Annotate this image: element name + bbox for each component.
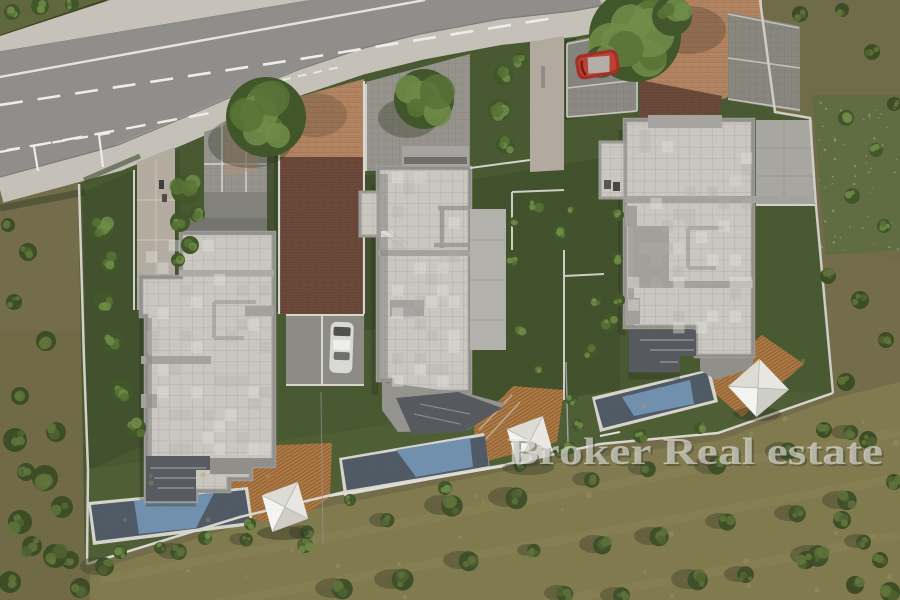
svg-text:Broker Real estate: Broker Real estate [507, 431, 883, 473]
